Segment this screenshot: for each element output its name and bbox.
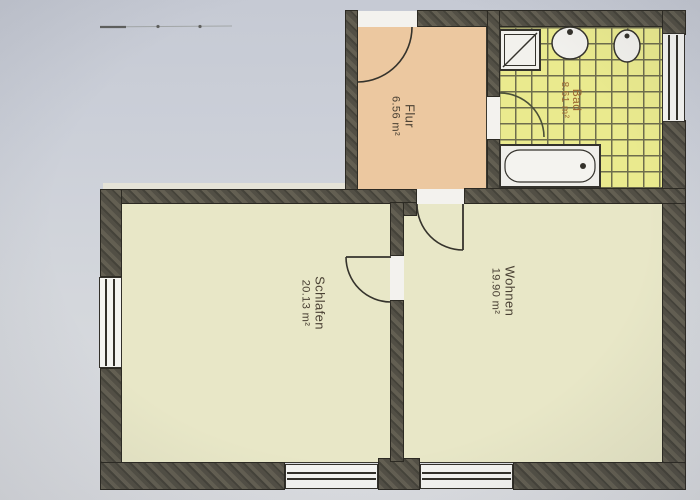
wall-divider-upper (390, 202, 404, 256)
pencil-dimension-line (100, 25, 232, 28)
wall-divider-lower (390, 300, 404, 462)
room-name: Schlafen (312, 276, 328, 330)
room-label-flur: Flur 6.56 m² (389, 96, 418, 136)
wall-bottom-pier (378, 458, 420, 490)
bedroom-bottom-window (285, 464, 378, 489)
wall-bottom-left (100, 462, 285, 490)
living-room-door-opening (417, 189, 464, 204)
bedroom-left-window-frame-line (113, 279, 115, 366)
living-room-bottom-window-frame-line (422, 472, 511, 474)
room-label-schlafen: Schlafen 20.13 m² (299, 276, 328, 330)
wall-bottom-right (513, 462, 686, 490)
bedroom-left-window (99, 277, 122, 368)
bedroom-door-opening (390, 256, 404, 300)
wall-top (417, 10, 686, 27)
wall-flur-left (345, 10, 358, 204)
wall-right-top (662, 10, 686, 35)
room-area: 20.13 m² (299, 276, 312, 330)
room-wohnen-floor (403, 202, 664, 463)
bath-window-frame-line (668, 35, 670, 120)
floorplan-photo: Flur 6.56 m² Bad 8.61 m² Wohnen 19.90 m²… (0, 0, 700, 500)
room-name: Wohnen (502, 266, 518, 317)
room-label-wohnen: Wohnen 19.90 m² (489, 266, 518, 317)
wall-left-upper (100, 189, 122, 277)
room-schlafen-floor (121, 202, 391, 463)
wall-right (662, 120, 686, 490)
room-area: 6.56 m² (389, 96, 402, 136)
entrance-door-opening (357, 11, 417, 27)
room-name: Bad (570, 82, 584, 119)
bedroom-bottom-window-frame-line (287, 472, 376, 474)
room-label-bad: Bad 8.61 m² (558, 82, 584, 119)
living-room-bottom-window-frame-line (422, 478, 511, 480)
wall-flur-bad-upper (487, 10, 500, 97)
wall-mid-left (100, 189, 417, 204)
bedroom-left-window-frame-line (105, 279, 107, 366)
bedroom-bottom-window-frame-line (287, 478, 376, 480)
room-area: 8.61 m² (558, 82, 570, 119)
wall-mid-right (464, 188, 686, 204)
room-area: 19.90 m² (489, 266, 502, 317)
room-name: Flur (402, 96, 418, 136)
living-room-bottom-window (420, 464, 513, 489)
bath-door-opening (487, 95, 500, 139)
bath-window-frame-line (676, 35, 678, 120)
bath-window (662, 33, 685, 122)
